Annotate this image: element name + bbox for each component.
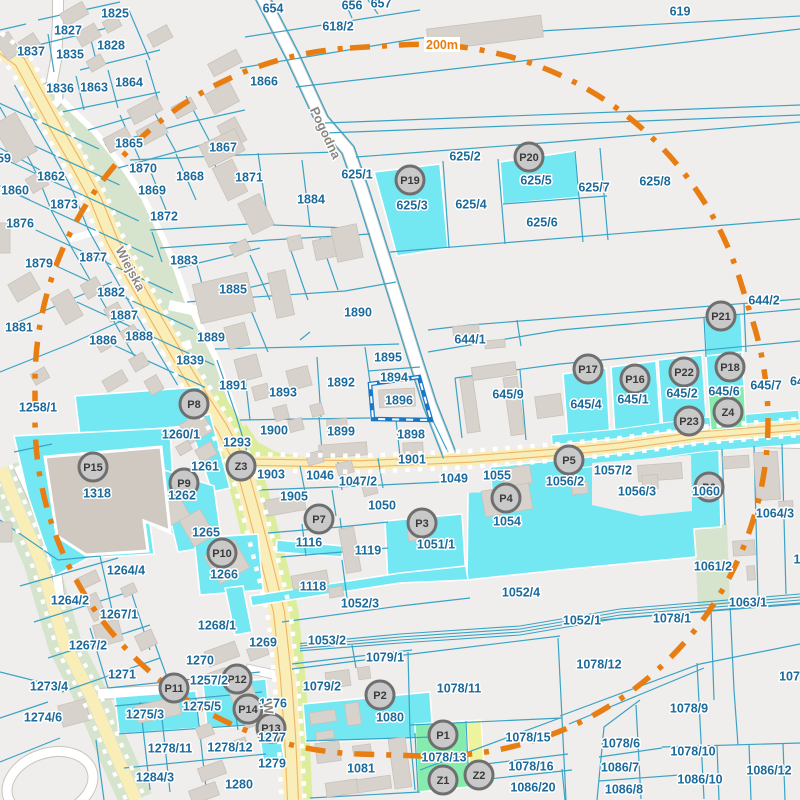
svg-text:1863: 1863 bbox=[80, 81, 108, 95]
svg-text:1885: 1885 bbox=[219, 283, 247, 297]
svg-text:1895: 1895 bbox=[374, 351, 402, 365]
svg-text:1060: 1060 bbox=[692, 485, 720, 499]
svg-text:1865: 1865 bbox=[115, 137, 143, 151]
svg-text:645/4: 645/4 bbox=[570, 398, 601, 412]
svg-text:625/1: 625/1 bbox=[341, 168, 372, 182]
svg-text:645/2: 645/2 bbox=[666, 387, 697, 401]
svg-text:P18: P18 bbox=[720, 362, 740, 374]
svg-text:1078/1: 1078/1 bbox=[653, 612, 691, 626]
svg-text:1293: 1293 bbox=[223, 436, 251, 450]
svg-text:1892: 1892 bbox=[327, 376, 355, 390]
svg-text:1273/4: 1273/4 bbox=[30, 680, 68, 694]
svg-text:1275/5: 1275/5 bbox=[183, 700, 221, 714]
svg-text:1064/3: 1064/3 bbox=[756, 507, 794, 521]
svg-text:645/1: 645/1 bbox=[617, 393, 648, 407]
svg-text:P1: P1 bbox=[436, 730, 449, 742]
svg-text:1270: 1270 bbox=[186, 654, 214, 668]
svg-text:1268/1: 1268/1 bbox=[198, 619, 236, 633]
svg-text:1903: 1903 bbox=[257, 468, 285, 482]
svg-text:P2: P2 bbox=[373, 690, 386, 702]
svg-text:1278/12: 1278/12 bbox=[207, 741, 252, 755]
svg-text:1836: 1836 bbox=[46, 82, 74, 96]
svg-text:1077: 1077 bbox=[779, 670, 800, 684]
svg-text:1051/1: 1051/1 bbox=[417, 538, 455, 552]
svg-text:1262: 1262 bbox=[168, 489, 196, 503]
svg-text:P5: P5 bbox=[562, 455, 575, 467]
svg-text:1269: 1269 bbox=[249, 636, 277, 650]
svg-text:1258/1: 1258/1 bbox=[19, 401, 57, 415]
svg-text:645/6: 645/6 bbox=[708, 385, 739, 399]
svg-text:625/3: 625/3 bbox=[396, 199, 427, 213]
svg-text:P20: P20 bbox=[519, 152, 539, 164]
svg-text:P15: P15 bbox=[83, 462, 103, 474]
svg-text:1825: 1825 bbox=[101, 7, 129, 21]
svg-text:1050: 1050 bbox=[368, 499, 396, 513]
svg-text:1871: 1871 bbox=[235, 171, 263, 185]
svg-text:1883: 1883 bbox=[170, 254, 198, 268]
svg-text:1890: 1890 bbox=[344, 306, 372, 320]
svg-text:1868: 1868 bbox=[176, 170, 204, 184]
svg-text:1866: 1866 bbox=[250, 75, 278, 89]
svg-text:P16: P16 bbox=[625, 374, 645, 386]
svg-text:1047/2: 1047/2 bbox=[339, 475, 377, 489]
svg-text:1876: 1876 bbox=[6, 217, 34, 231]
svg-text:1284/3: 1284/3 bbox=[136, 771, 174, 785]
svg-text:1862: 1862 bbox=[37, 170, 65, 184]
svg-text:P23: P23 bbox=[679, 416, 699, 428]
svg-text:1879: 1879 bbox=[25, 257, 53, 271]
svg-text:1873: 1873 bbox=[50, 198, 78, 212]
svg-text:1078/6: 1078/6 bbox=[602, 737, 640, 751]
svg-text:P14: P14 bbox=[238, 704, 258, 716]
svg-text:1884: 1884 bbox=[297, 193, 325, 207]
svg-text:1827: 1827 bbox=[54, 24, 82, 38]
svg-text:625/2: 625/2 bbox=[449, 150, 480, 164]
svg-text:1267/2: 1267/2 bbox=[69, 639, 107, 653]
svg-text:654: 654 bbox=[263, 2, 284, 16]
svg-text:1260/1: 1260/1 bbox=[162, 428, 200, 442]
svg-text:1056/2: 1056/2 bbox=[546, 475, 584, 489]
svg-text:1081: 1081 bbox=[347, 762, 375, 776]
svg-text:625/5: 625/5 bbox=[520, 174, 551, 188]
svg-text:1864: 1864 bbox=[115, 76, 143, 90]
svg-text:656: 656 bbox=[342, 0, 363, 13]
svg-text:1265: 1265 bbox=[192, 526, 220, 540]
svg-text:P10: P10 bbox=[212, 548, 232, 560]
svg-text:657: 657 bbox=[371, 0, 392, 11]
svg-text:1839: 1839 bbox=[176, 354, 204, 368]
svg-text:1901: 1901 bbox=[398, 453, 426, 467]
svg-text:P7: P7 bbox=[312, 514, 325, 526]
svg-text:1889: 1889 bbox=[197, 331, 225, 345]
svg-text:1078/15: 1078/15 bbox=[505, 731, 550, 745]
svg-text:1837: 1837 bbox=[17, 45, 45, 59]
svg-text:1086/12: 1086/12 bbox=[746, 764, 791, 778]
svg-text:1086/7: 1086/7 bbox=[601, 761, 639, 775]
svg-text:1052/1: 1052/1 bbox=[563, 614, 601, 628]
svg-text:1056/3: 1056/3 bbox=[618, 485, 656, 499]
svg-text:1086/10: 1086/10 bbox=[677, 773, 722, 787]
svg-text:1893: 1893 bbox=[269, 386, 297, 400]
svg-text:1870: 1870 bbox=[129, 162, 157, 176]
svg-text:625/7: 625/7 bbox=[578, 181, 609, 195]
svg-text:1046: 1046 bbox=[306, 469, 334, 483]
svg-text:645/9: 645/9 bbox=[492, 388, 523, 402]
svg-text:1052/4: 1052/4 bbox=[502, 586, 540, 600]
svg-text:1063/1: 1063/1 bbox=[729, 596, 767, 610]
svg-text:P12: P12 bbox=[227, 674, 247, 686]
svg-text:1116: 1116 bbox=[296, 536, 322, 550]
svg-text:1869: 1869 bbox=[138, 184, 166, 198]
svg-text:1052/3: 1052/3 bbox=[341, 597, 379, 611]
svg-text:1261: 1261 bbox=[191, 460, 219, 474]
svg-text:1278/11: 1278/11 bbox=[148, 742, 193, 756]
svg-text:Z2: Z2 bbox=[473, 770, 486, 782]
svg-text:P8: P8 bbox=[187, 399, 200, 411]
svg-text:1280: 1280 bbox=[225, 778, 253, 792]
svg-text:1905: 1905 bbox=[280, 490, 308, 504]
svg-text:1080: 1080 bbox=[376, 711, 404, 725]
svg-text:1899: 1899 bbox=[327, 425, 355, 439]
svg-text:1872: 1872 bbox=[150, 210, 178, 224]
svg-text:59: 59 bbox=[0, 152, 11, 166]
svg-text:1274/6: 1274/6 bbox=[24, 711, 62, 725]
svg-text:P11: P11 bbox=[165, 683, 184, 695]
svg-text:1055: 1055 bbox=[483, 469, 511, 483]
svg-text:1900: 1900 bbox=[260, 424, 288, 438]
svg-text:1264/2: 1264/2 bbox=[51, 594, 89, 608]
svg-text:1053/2: 1053/2 bbox=[308, 634, 346, 648]
svg-text:1888: 1888 bbox=[125, 330, 153, 344]
svg-text:1049: 1049 bbox=[440, 472, 468, 486]
svg-text:200m: 200m bbox=[426, 38, 458, 52]
svg-text:1271: 1271 bbox=[108, 668, 136, 682]
svg-text:1277: 1277 bbox=[258, 731, 286, 745]
svg-text:644/1: 644/1 bbox=[454, 333, 485, 347]
svg-text:Z4: Z4 bbox=[722, 407, 736, 419]
svg-text:1078/11: 1078/11 bbox=[437, 682, 482, 696]
svg-text:1886: 1886 bbox=[89, 334, 117, 348]
svg-text:619: 619 bbox=[670, 5, 691, 19]
svg-text:1828: 1828 bbox=[97, 39, 125, 53]
svg-text:P19: P19 bbox=[400, 175, 420, 187]
svg-text:1086/20: 1086/20 bbox=[510, 781, 555, 795]
svg-text:1257/2: 1257/2 bbox=[190, 674, 228, 688]
svg-text:1078/16: 1078/16 bbox=[508, 760, 553, 774]
svg-text:1078/9: 1078/9 bbox=[670, 702, 708, 716]
svg-text:1882: 1882 bbox=[97, 286, 125, 300]
svg-text:1079/1: 1079/1 bbox=[366, 651, 404, 665]
svg-text:645/7: 645/7 bbox=[750, 379, 781, 393]
svg-text:1079/2: 1079/2 bbox=[303, 680, 341, 694]
svg-text:Z1: Z1 bbox=[437, 775, 450, 787]
svg-text:1318: 1318 bbox=[83, 487, 111, 501]
svg-text:P21: P21 bbox=[711, 311, 731, 323]
svg-text:618/2: 618/2 bbox=[322, 20, 353, 34]
svg-text:1267/1: 1267/1 bbox=[100, 608, 138, 622]
svg-text:1891: 1891 bbox=[219, 379, 247, 393]
svg-text:1078/13: 1078/13 bbox=[421, 751, 466, 765]
svg-text:1279: 1279 bbox=[258, 757, 286, 771]
svg-text:625/8: 625/8 bbox=[639, 175, 670, 189]
svg-text:1887: 1887 bbox=[110, 309, 138, 323]
svg-text:P4: P4 bbox=[499, 493, 513, 505]
svg-text:1894: 1894 bbox=[380, 371, 408, 385]
svg-text:1266: 1266 bbox=[210, 568, 238, 582]
svg-text:1835: 1835 bbox=[56, 48, 84, 62]
svg-text:1860: 1860 bbox=[1, 184, 29, 198]
svg-text:P22: P22 bbox=[674, 367, 694, 379]
svg-text:1086/8: 1086/8 bbox=[605, 783, 643, 797]
svg-text:1264/4: 1264/4 bbox=[107, 564, 145, 578]
svg-text:P3: P3 bbox=[415, 518, 428, 530]
svg-text:P17: P17 bbox=[578, 364, 598, 376]
svg-text:1896: 1896 bbox=[385, 394, 413, 408]
svg-text:Z3: Z3 bbox=[235, 461, 248, 473]
svg-text:64: 64 bbox=[790, 375, 800, 389]
svg-text:1275/3: 1275/3 bbox=[126, 708, 164, 722]
svg-text:1057/2: 1057/2 bbox=[594, 464, 632, 478]
svg-text:625/6: 625/6 bbox=[526, 216, 557, 230]
svg-text:1898: 1898 bbox=[397, 428, 425, 442]
svg-text:1867: 1867 bbox=[209, 141, 237, 155]
svg-text:1118: 1118 bbox=[300, 580, 326, 594]
svg-text:1881: 1881 bbox=[5, 321, 33, 335]
svg-text:1119: 1119 bbox=[355, 544, 381, 558]
svg-text:1054: 1054 bbox=[493, 515, 521, 529]
svg-text:1: 1 bbox=[794, 553, 800, 567]
svg-text:1078/10: 1078/10 bbox=[670, 745, 715, 759]
svg-text:625/4: 625/4 bbox=[455, 198, 486, 212]
svg-text:1877: 1877 bbox=[79, 251, 107, 265]
svg-text:1061/2: 1061/2 bbox=[694, 560, 732, 574]
svg-text:644/2: 644/2 bbox=[748, 294, 779, 308]
svg-text:1078/12: 1078/12 bbox=[576, 658, 621, 672]
